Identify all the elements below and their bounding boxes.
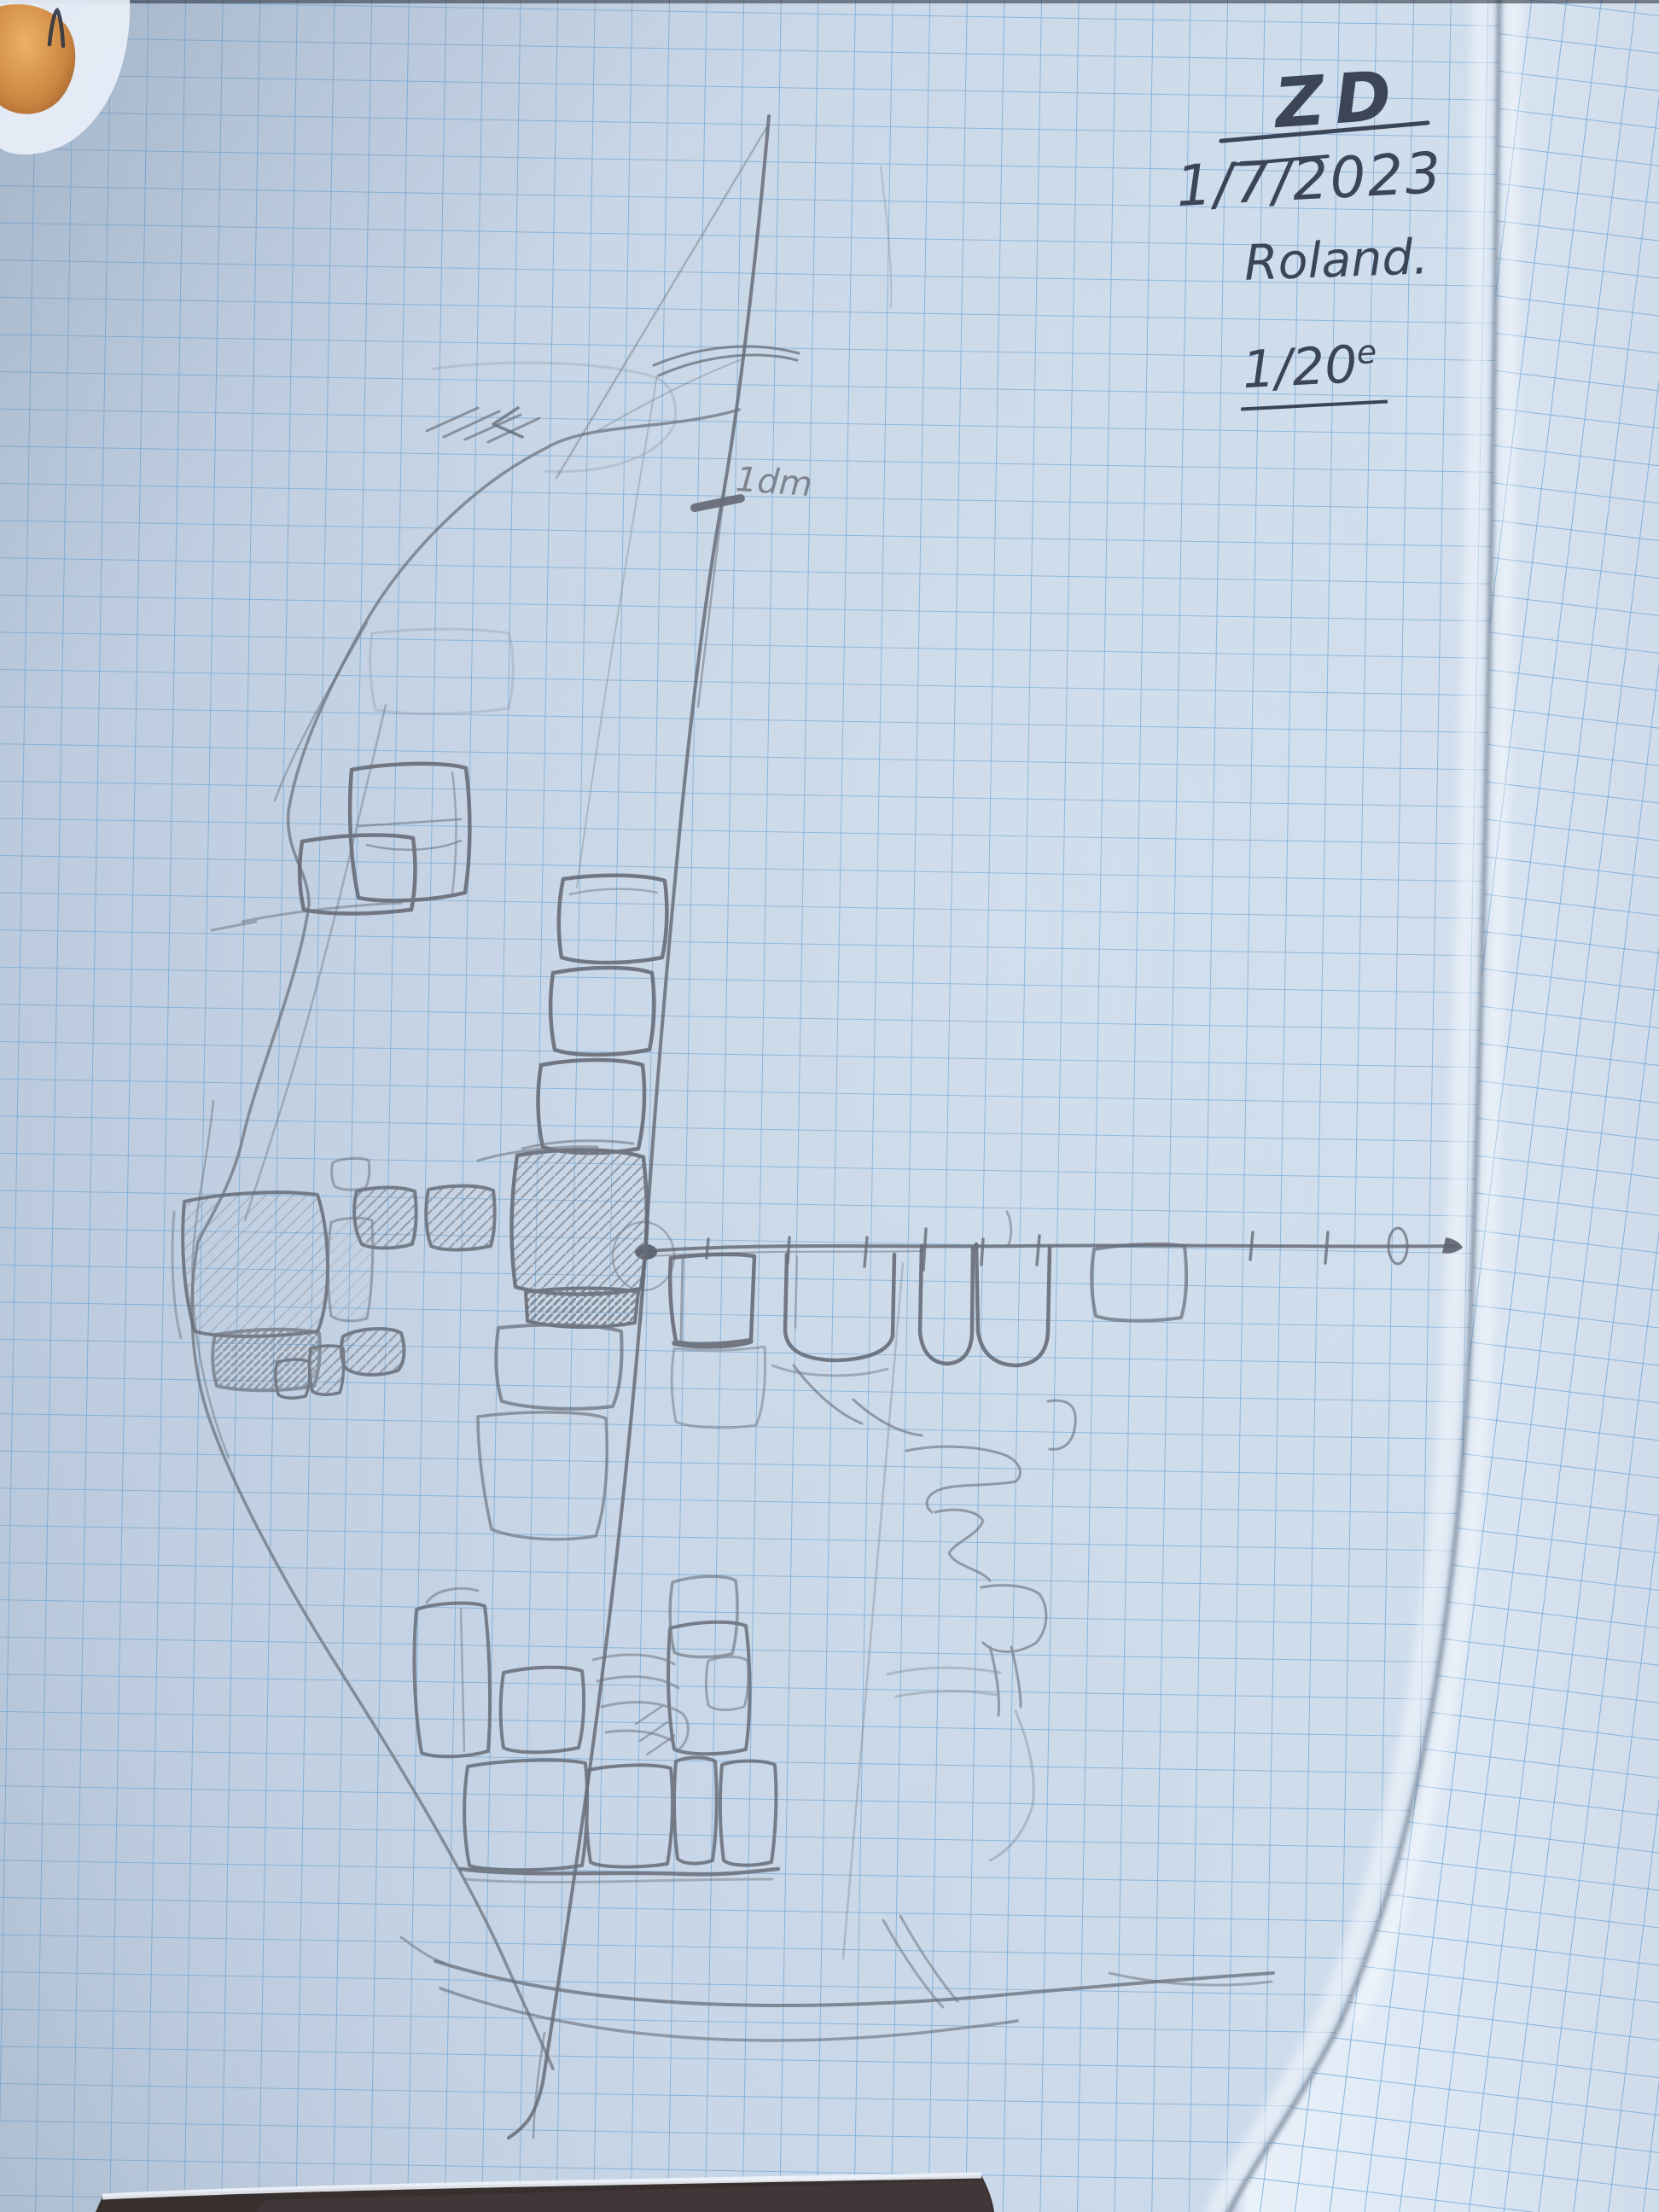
scale-annotation: 1/20e bbox=[1239, 336, 1386, 407]
tick-measure-text: 1dm bbox=[735, 460, 814, 504]
top-edge-shadow bbox=[0, 0, 1659, 3]
sketch-canvas bbox=[0, 0, 1659, 2212]
author-annotation: Roland. bbox=[1243, 229, 1429, 291]
date-annotation: 1/7/2023 bbox=[1174, 140, 1444, 219]
scale-suffix: e bbox=[1356, 333, 1378, 371]
date-text: 1/7/2023 bbox=[1174, 140, 1444, 219]
scale-text: 1/20 bbox=[1241, 335, 1359, 400]
notebook-photo: ZD 1/7/2023 Roland. 1/20e 1dm bbox=[0, 0, 1659, 2212]
scale-wrap: 1/20e bbox=[1237, 333, 1388, 411]
tick-measure-label: 1dm bbox=[735, 460, 814, 504]
author-text: Roland. bbox=[1243, 229, 1429, 291]
